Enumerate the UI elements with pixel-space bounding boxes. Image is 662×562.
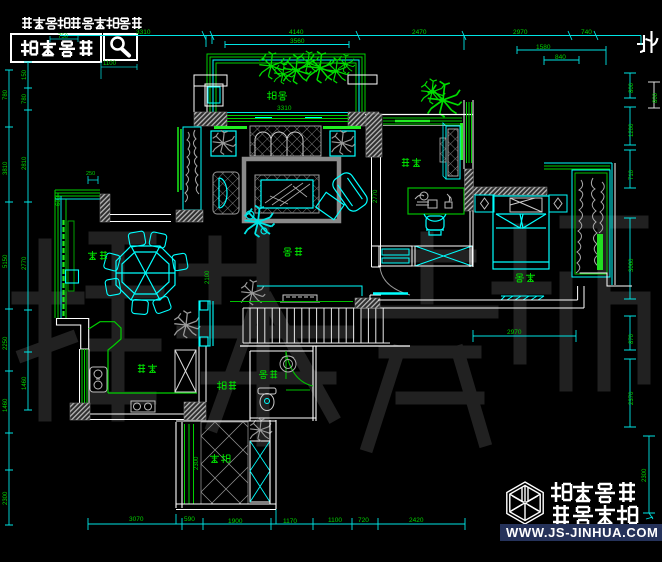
svg-text:2470: 2470 — [412, 29, 427, 36]
svg-text:710: 710 — [629, 169, 635, 180]
svg-text:2300: 2300 — [3, 491, 9, 505]
svg-text:2810: 2810 — [22, 156, 28, 170]
svg-text:1460: 1460 — [22, 376, 28, 390]
svg-text:2970: 2970 — [513, 29, 528, 36]
svg-text:3310: 3310 — [277, 105, 292, 112]
svg-text:WWW.JS-JINHUA.COM: WWW.JS-JINHUA.COM — [506, 525, 658, 540]
svg-text:870: 870 — [629, 333, 635, 344]
svg-text:1170: 1170 — [283, 518, 297, 525]
svg-text:720: 720 — [358, 517, 369, 524]
svg-text:2420: 2420 — [409, 517, 424, 524]
svg-text:2370: 2370 — [629, 391, 635, 405]
svg-text:1460: 1460 — [3, 398, 9, 412]
svg-text:740: 740 — [581, 29, 592, 36]
svg-text:840: 840 — [555, 54, 566, 61]
svg-text:800: 800 — [629, 82, 635, 93]
svg-text:780: 780 — [3, 89, 9, 100]
svg-text:3560: 3560 — [290, 38, 305, 45]
svg-text:2300: 2300 — [642, 468, 648, 482]
svg-text:2100: 2100 — [205, 270, 211, 284]
svg-text:4140: 4140 — [289, 29, 304, 36]
svg-text:2970: 2970 — [507, 329, 522, 336]
svg-text:2770: 2770 — [22, 256, 28, 270]
svg-text:800: 800 — [653, 92, 659, 103]
svg-text:5150: 5150 — [3, 254, 9, 268]
svg-text:3810: 3810 — [3, 161, 9, 175]
svg-text:1100: 1100 — [103, 61, 117, 67]
svg-text:1580: 1580 — [536, 44, 551, 51]
svg-text:2770: 2770 — [373, 189, 379, 203]
svg-text:150: 150 — [22, 69, 28, 80]
svg-text:3070: 3070 — [129, 516, 144, 523]
svg-text:590: 590 — [184, 516, 195, 523]
svg-text:1900: 1900 — [228, 518, 243, 525]
svg-text:1100: 1100 — [328, 517, 342, 524]
svg-text:3310: 3310 — [136, 29, 151, 36]
svg-text:2250: 2250 — [3, 336, 9, 350]
svg-text:250: 250 — [86, 171, 95, 177]
svg-text:3060: 3060 — [629, 258, 635, 272]
svg-text:1200: 1200 — [629, 123, 635, 137]
svg-text:2300: 2300 — [194, 456, 200, 470]
svg-text:780: 780 — [22, 93, 28, 104]
